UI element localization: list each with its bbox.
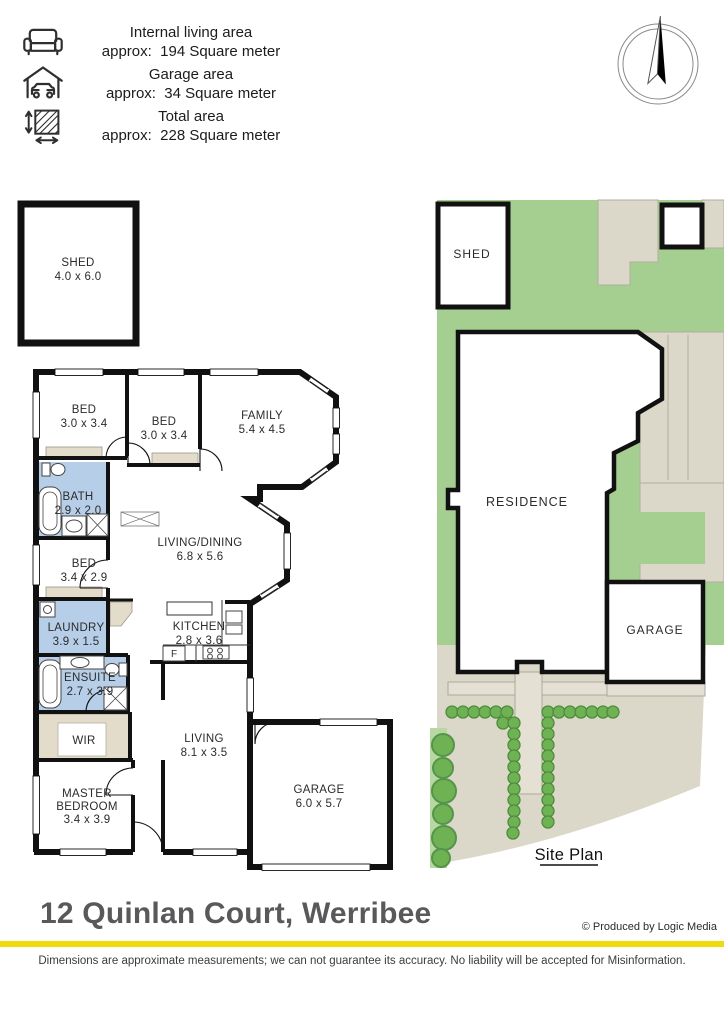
floor-plan: SHED 4.0 x 6.0 (0, 195, 400, 885)
siteplan-residence-label: RESIDENCE (486, 495, 568, 509)
accent-divider (0, 941, 724, 947)
room-label-living: LIVING (184, 733, 224, 745)
fridge-label: F (171, 649, 177, 660)
room-label-bath: BATH (62, 491, 93, 503)
legend-item-garage: Garage area approx: 34 Square meter (12, 62, 316, 106)
legend-value: approx: 228 Square meter (66, 126, 316, 146)
room-dims-bed-2: 3.0 x 3.4 (141, 430, 188, 442)
room-dims-bath: 2.9 x 2.0 (55, 505, 102, 517)
room-label-bed-2: BED (152, 416, 177, 428)
area-icon (20, 104, 66, 148)
legend-title: Garage area (66, 65, 316, 84)
room-dims-master: 3.4 x 3.9 (64, 814, 111, 826)
room-label-laundry: LAUNDRY (48, 622, 105, 634)
legend-item-total-area: Total area approx: 228 Square meter (12, 104, 316, 148)
room-label-master-1: MASTER (62, 788, 112, 800)
legend-title: Internal living area (66, 23, 316, 42)
room-dims-bed-1: 3.0 x 3.4 (61, 418, 108, 430)
legend-value: approx: 34 Square meter (66, 84, 316, 104)
room-label-master-2: BEDROOM (56, 801, 118, 813)
siteplan-shed-label: SHED (453, 247, 490, 261)
compass-north-icon (608, 12, 708, 116)
room-label-shed: SHED (61, 257, 94, 269)
legend-item-internal-living: Internal living area approx: 194 Square … (12, 20, 316, 64)
garage-icon (20, 62, 66, 106)
siteplan-caption: Site Plan (535, 846, 604, 864)
sofa-icon (20, 20, 66, 64)
room-label-wir: WIR (72, 735, 95, 747)
room-dims-laundry: 3.9 x 1.5 (53, 636, 100, 648)
page-title: 12 Quinlan Court, Werribee (40, 897, 431, 931)
room-label-family: FAMILY (241, 410, 283, 422)
legend-title: Total area (66, 107, 316, 126)
producer-credit: © Produced by Logic Media (582, 921, 717, 933)
room-label-ensuite: ENSUITE (64, 672, 116, 684)
room-dims-living-dining: 6.8 x 5.6 (177, 551, 224, 563)
room-dims-family: 5.4 x 4.5 (239, 424, 286, 436)
siteplan-garage-label: GARAGE (626, 623, 683, 637)
room-dims-bed-3: 3.4 x 2.9 (61, 572, 108, 584)
room-dims-shed: 4.0 x 6.0 (55, 271, 102, 283)
floorplan-shed: SHED 4.0 x 6.0 (21, 204, 136, 343)
disclaimer-text: Dimensions are approximate measurements;… (0, 955, 724, 967)
room-label-living-dining: LIVING/DINING (157, 537, 242, 549)
room-label-garage: GARAGE (293, 784, 344, 796)
room-dims-ensuite: 2.7 x 3.9 (67, 686, 114, 698)
room-label-kitchen: KITCHEN (173, 621, 226, 633)
floorplan-page: Internal living area approx: 194 Square … (0, 0, 724, 1024)
room-label-bed-3: BED (72, 558, 97, 570)
site-plan: SHED RESIDENCE GARAGE Site Plan (420, 195, 724, 885)
room-dims-garage: 6.0 x 5.7 (296, 798, 343, 810)
room-dims-living: 8.1 x 3.5 (181, 747, 228, 759)
legend-value: approx: 194 Square meter (66, 42, 316, 62)
room-label-bed-1: BED (72, 404, 97, 416)
room-dims-kitchen: 2.8 x 3.6 (176, 635, 223, 647)
